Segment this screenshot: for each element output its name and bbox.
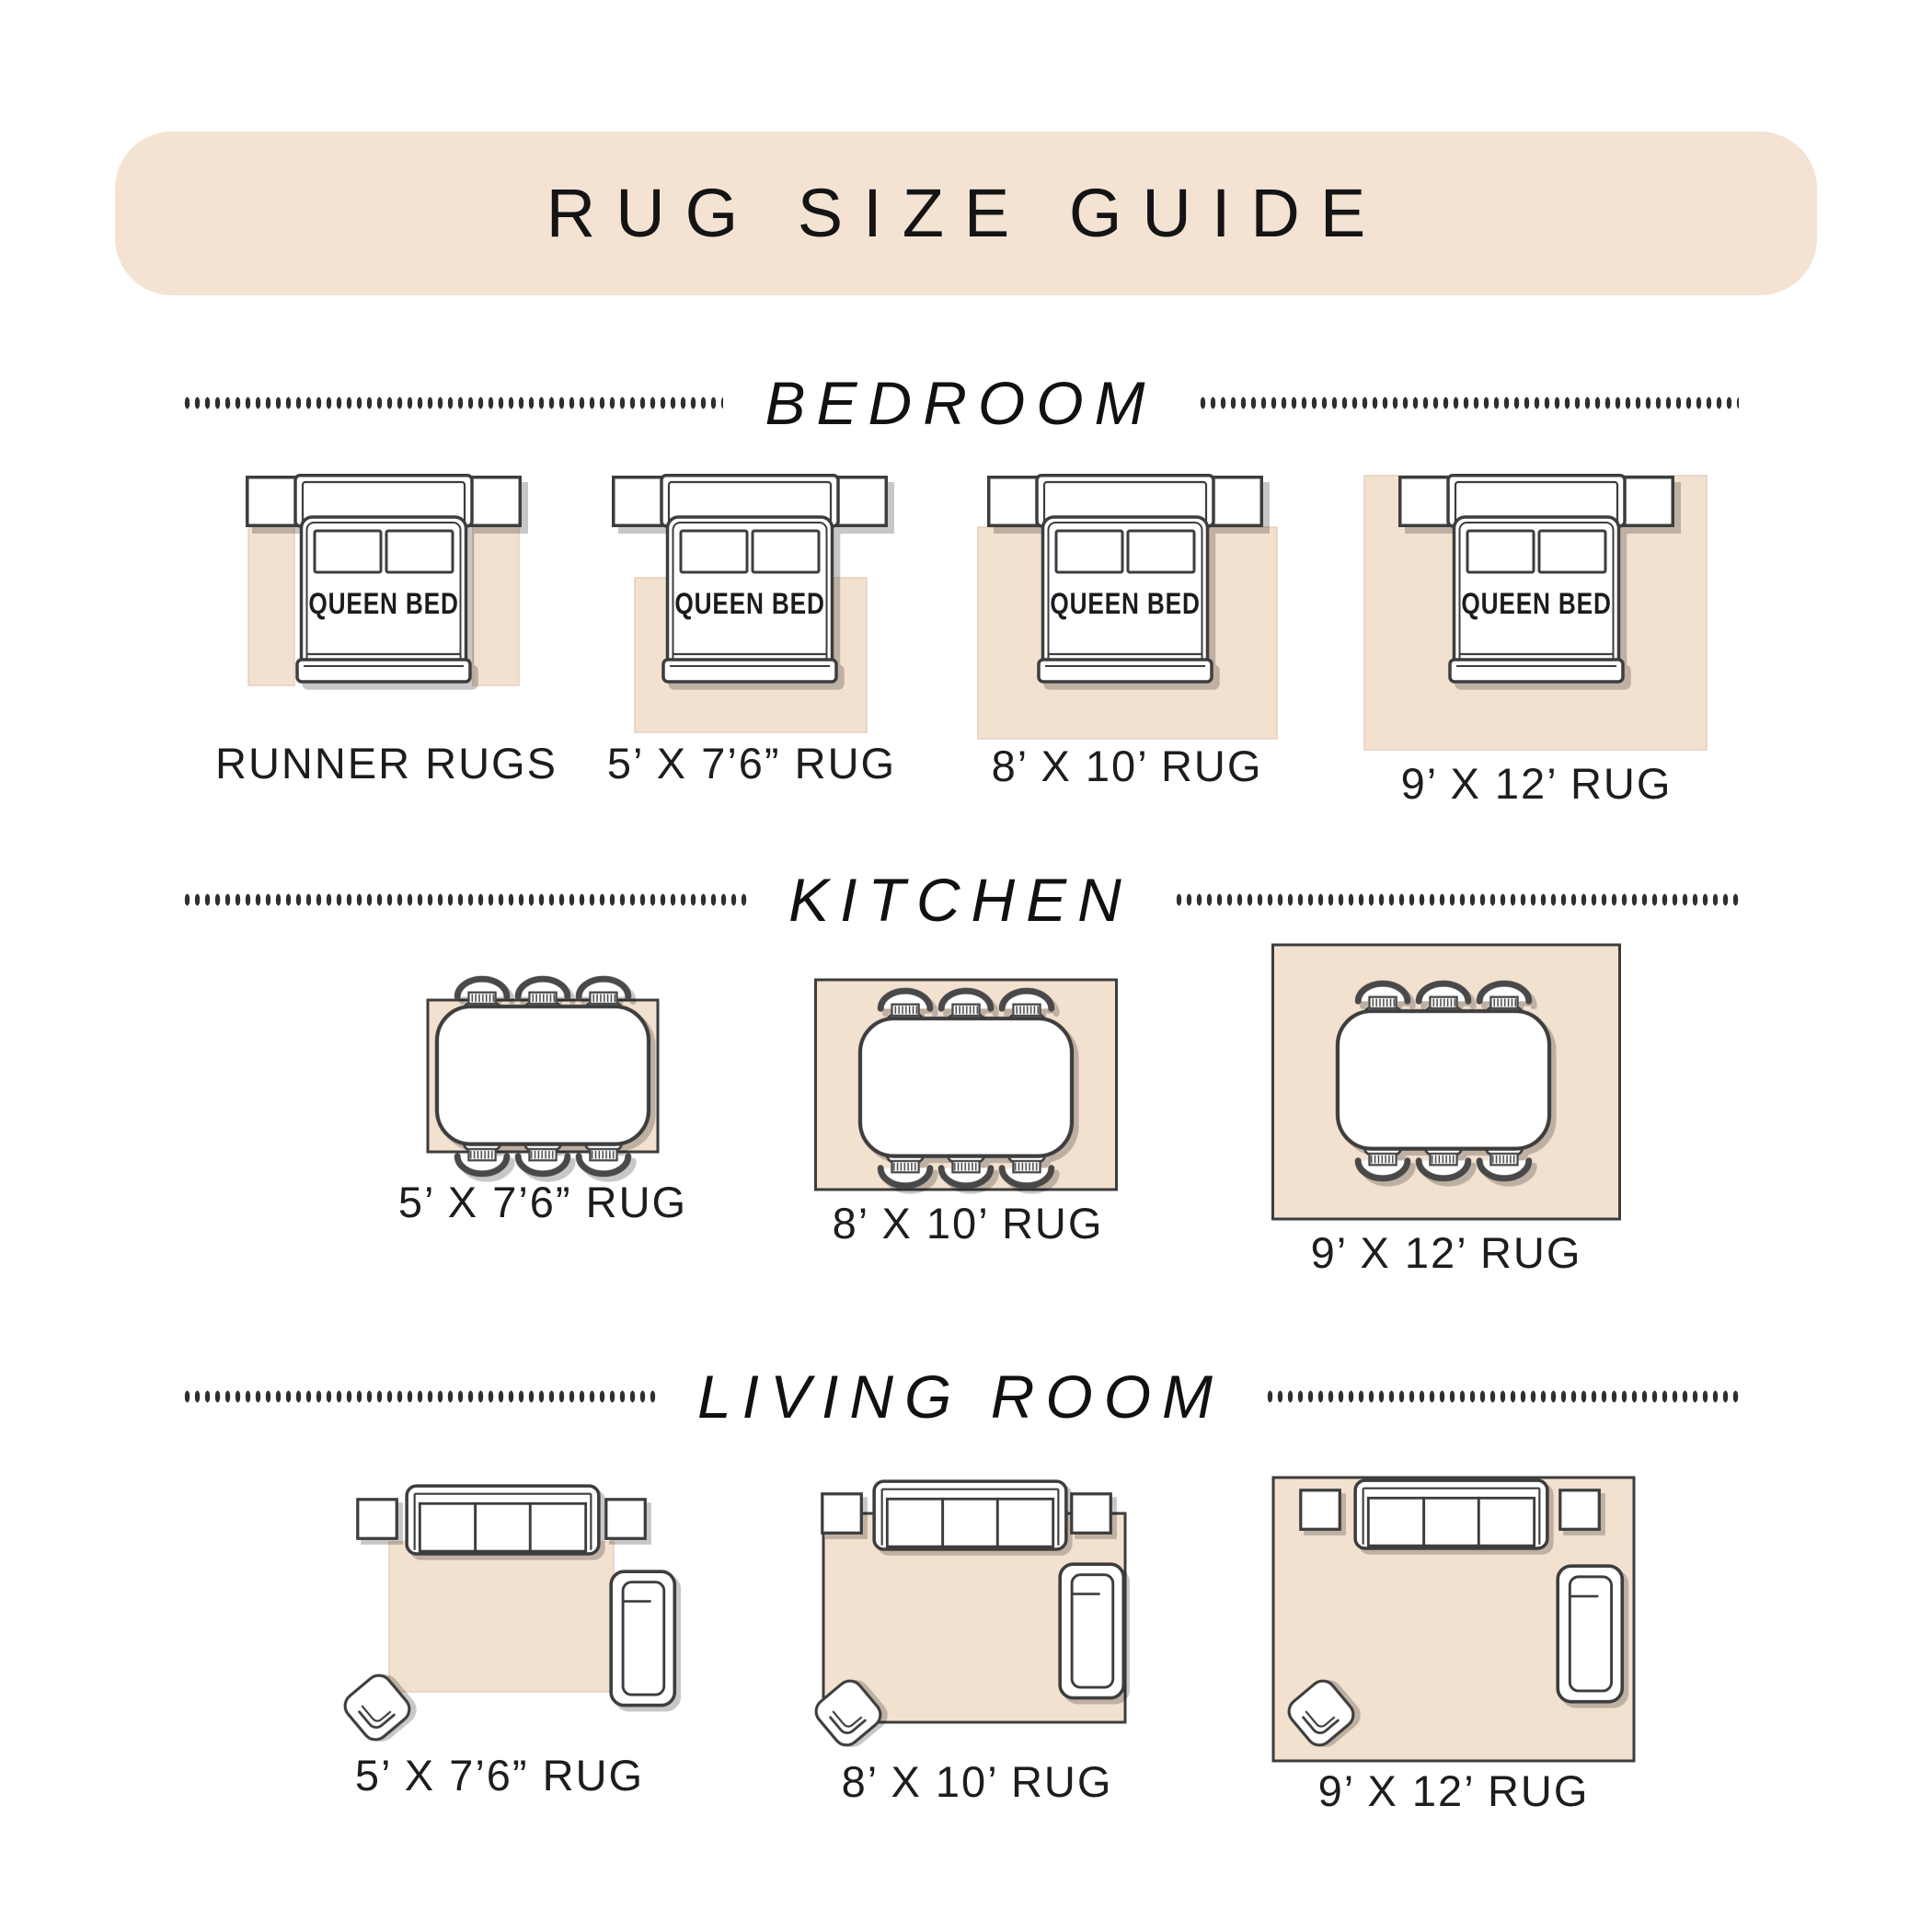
dotted-divider bbox=[182, 891, 747, 909]
diagram-kitchen-8x10 bbox=[814, 974, 1118, 1195]
page-title: RUG SIZE GUIDE bbox=[115, 132, 1817, 295]
runner-rug-icon bbox=[473, 526, 519, 685]
rug-size-label: 5’ X 7’6” RUG bbox=[558, 739, 945, 788]
rug-size-label: RUNNER RUGS bbox=[193, 739, 580, 788]
rug-size-label: 9’ X 12’ RUG bbox=[1253, 1228, 1639, 1278]
section-header-bedroom: BEDROOM bbox=[182, 368, 1739, 438]
side-table-icon bbox=[1560, 1490, 1599, 1529]
side-table-icon bbox=[606, 1500, 645, 1538]
lounge-chair-icon bbox=[1060, 1564, 1123, 1697]
lounge-chair-icon bbox=[1558, 1566, 1622, 1701]
section-title-living-room: LIVING ROOM bbox=[697, 1362, 1224, 1432]
side-table-icon bbox=[358, 1500, 397, 1538]
diagram-bedroom-5x76 bbox=[612, 474, 888, 735]
rug-size-guide-infographic: QUEEN BED bbox=[0, 0, 1932, 1932]
diagram-bedroom-runner-rugs bbox=[246, 474, 522, 687]
dining-table-icon bbox=[437, 979, 649, 1174]
rug-size-label: 9’ X 12’ RUG bbox=[1260, 1766, 1647, 1816]
dotted-divider bbox=[182, 1387, 656, 1406]
diagram-living-8x10 bbox=[800, 1467, 1155, 1764]
section-header-living-room: LIVING ROOM bbox=[182, 1362, 1739, 1432]
dotted-divider bbox=[1265, 1387, 1739, 1406]
side-table-icon bbox=[1301, 1490, 1340, 1529]
dotted-divider bbox=[182, 394, 723, 412]
title-banner: RUG SIZE GUIDE bbox=[115, 132, 1817, 295]
diagram-bedroom-9x12 bbox=[1364, 465, 1707, 754]
diagram-living-9x12 bbox=[1270, 1467, 1638, 1771]
section-header-kitchen: KITCHEN bbox=[182, 865, 1739, 935]
side-table-icon bbox=[1072, 1494, 1110, 1533]
runner-rug-icon bbox=[248, 526, 294, 685]
section-title-bedroom: BEDROOM bbox=[765, 368, 1156, 438]
dining-table-icon bbox=[1338, 983, 1549, 1179]
dotted-divider bbox=[1198, 394, 1739, 412]
diagram-kitchen-9x12 bbox=[1271, 943, 1621, 1221]
rug-size-label: 5’ X 7’6” RUG bbox=[350, 1178, 736, 1227]
diagram-living-5x76 bbox=[331, 1472, 681, 1757]
sofa-icon bbox=[407, 1486, 599, 1554]
section-title-kitchen: KITCHEN bbox=[788, 865, 1133, 935]
rug-size-label: 8’ X 10’ RUG bbox=[784, 1757, 1170, 1807]
sofa-icon bbox=[1355, 1480, 1547, 1548]
rug-size-label: 9’ X 12’ RUG bbox=[1343, 759, 1730, 809]
area-rug-icon bbox=[389, 1542, 614, 1692]
lounge-chair-icon bbox=[611, 1571, 674, 1705]
dotted-divider bbox=[1174, 891, 1739, 909]
rug-size-label: 8’ X 10’ RUG bbox=[934, 742, 1320, 791]
diagram-kitchen-5x76 bbox=[423, 957, 667, 1189]
diagram-bedroom-8x10 bbox=[973, 474, 1282, 742]
rug-size-label: 8’ X 10’ RUG bbox=[775, 1199, 1161, 1248]
dining-table-icon bbox=[860, 991, 1072, 1186]
sofa-icon bbox=[874, 1481, 1066, 1549]
rug-size-label: 5’ X 7’6” RUG bbox=[306, 1751, 693, 1800]
side-table-icon bbox=[822, 1494, 861, 1533]
